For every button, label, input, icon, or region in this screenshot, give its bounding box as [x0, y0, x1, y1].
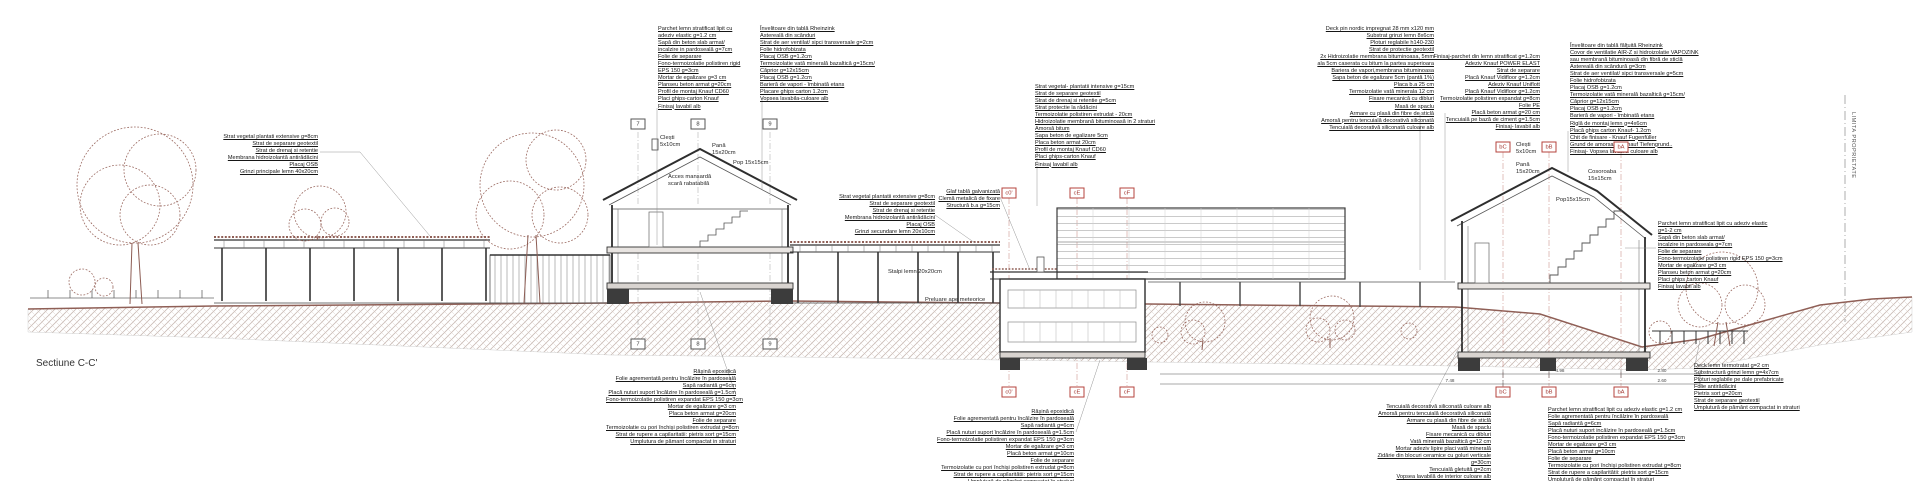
- grid-marker-7-bottom: 7: [631, 339, 646, 350]
- annotation-house3-roof: Învelitoare din tablă fălțuită Rheinzink…: [1570, 43, 1700, 156]
- annotation-glaf: Glaf tablă galvanizatăClemă metalică de …: [900, 189, 1000, 210]
- label-pop-house1: Pop 15x15cm: [733, 160, 768, 167]
- annotation-house1-roof: Învelitoare din tablă RheinzinkAstereală…: [760, 26, 890, 104]
- annotation-deck-layers: Deck lemn termotratat g=2 cmSubstructură…: [1694, 363, 1824, 412]
- grid-marker-cF-bottom: cF: [1120, 387, 1135, 398]
- garden-wall: [490, 255, 610, 303]
- annotation-house1-floor: Parchet lemn stratificat lipit cuadeziv …: [658, 26, 768, 111]
- label-cosoroaba: Cosoroaba 15x15cm: [1588, 169, 1616, 183]
- label-preluare-ape: Preluare ape meteorice: [925, 297, 985, 304]
- section-drawing-sheet: Strat vegetal plantati extensive g=8cmSt…: [0, 0, 1920, 481]
- left-fence: [30, 290, 214, 298]
- annotation-floating-floor: Finisaj-parchet din lemn stratificat g=1…: [1400, 54, 1540, 132]
- grid-marker-bC-bottom: bC: [1496, 387, 1511, 398]
- grid-marker-cE-top: cE: [1070, 188, 1085, 199]
- section-title: Sectiune C-C': [36, 358, 97, 369]
- grid-marker-bA-top: bA: [1614, 142, 1629, 153]
- grid-marker-7-top: 7: [631, 119, 646, 130]
- annotation-intensive-roof: Strat vegetal- plantatii intensive g=15c…: [1035, 84, 1175, 169]
- annotation-house3-floor: Parchet lemn stratificat lipit cu adeziv…: [1658, 221, 1763, 291]
- grid-marker-cF-top: cF: [1120, 188, 1135, 199]
- label-stalpi-lemn: Stalpi lemn 20x20cm: [888, 269, 942, 276]
- annotation-slab-grade-3: Parchet lemn stratificat lipit cu adeziv…: [1548, 407, 1738, 481]
- grid-marker-bA-bottom: bA: [1614, 387, 1629, 398]
- house3-stair: [1550, 211, 1622, 283]
- grid-marker-9-bottom: 9: [763, 339, 778, 350]
- label-pop-house3: Pop15x15cm: [1556, 197, 1590, 204]
- grid-marker-9-top: 9: [763, 119, 778, 130]
- label-clesti-house3: Clești 5x10cm: [1516, 142, 1536, 156]
- grid-marker-bB-bottom: bB: [1542, 387, 1557, 398]
- dim-value-2: 2.80: [1658, 368, 1667, 373]
- label-clesti-house1: Clești 5x10cm: [660, 135, 680, 149]
- grid-marker-c0-top: c0': [1002, 188, 1017, 199]
- dim-value-3: 7.48: [1446, 378, 1455, 383]
- grid-marker-c0-bottom: c0': [1002, 387, 1017, 398]
- dim-value-1: 4.98: [1556, 368, 1565, 373]
- annotation-wall-layers: Tencuială decorativă siliconată culoare …: [1361, 404, 1491, 481]
- annotation-roof-garden-left: Strat vegetal plantati extensive g=8cmSt…: [198, 134, 318, 176]
- label-pana-house1: Pană 15x20cm: [712, 143, 736, 157]
- grid-marker-cE-bottom: cE: [1070, 387, 1085, 398]
- grid-marker-8-bottom: 8: [691, 339, 706, 350]
- property-limit-label: LIMITA PROPRIETATE: [1850, 112, 1856, 179]
- label-pana-house3: Pană 15x20cm: [1516, 162, 1540, 176]
- grid-marker-bB-top: bB: [1542, 142, 1557, 153]
- label-acces-mansarda: Acces mansardă scară rabatabilă: [668, 174, 711, 188]
- grid-marker-8-top: 8: [691, 119, 706, 130]
- dimension-lines: [1160, 370, 1700, 388]
- grid-marker-bC-top: bC: [1496, 142, 1511, 153]
- annotation-slab-grade-1: Rășină epoxidicăFolie agrementată pentru…: [606, 369, 736, 447]
- annotation-slab-grade-2: Rășină epoxidicăFolie agrementată pentru…: [934, 409, 1074, 481]
- left-pavilion: [214, 237, 500, 303]
- dim-value-4: 2.60: [1658, 378, 1667, 383]
